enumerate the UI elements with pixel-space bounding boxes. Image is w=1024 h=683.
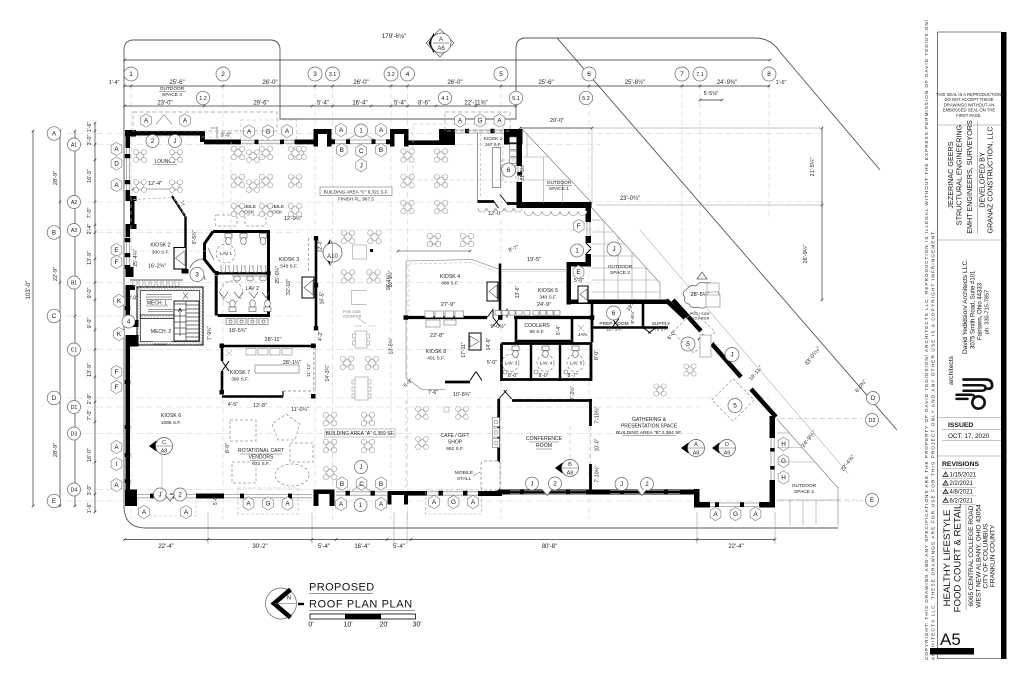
svg-text:103'-0": 103'-0" <box>26 281 32 300</box>
svg-text:3'-0": 3'-0" <box>128 296 138 302</box>
svg-text:A: A <box>713 511 718 518</box>
svg-text:22'-9": 22'-9" <box>53 267 59 281</box>
svg-text:MECH. 2: MECH. 2 <box>151 329 172 335</box>
svg-text:F: F <box>115 259 119 266</box>
svg-text:1'-6": 1'-6" <box>776 80 787 86</box>
svg-text:K: K <box>117 298 122 305</box>
svg-text:380 S.F.: 380 S.F. <box>152 250 170 256</box>
svg-text:662 S.F.: 662 S.F. <box>446 446 464 452</box>
svg-text:A: A <box>114 146 119 153</box>
svg-text:G: G <box>451 499 456 506</box>
svg-text:6'-4": 6'-4" <box>556 325 562 335</box>
svg-text:ROOM: ROOM <box>536 443 552 449</box>
svg-text:7'-0": 7'-0" <box>87 208 93 219</box>
svg-text:548 S.F.: 548 S.F. <box>280 264 298 270</box>
svg-text:5'-0": 5'-0" <box>213 495 219 505</box>
svg-text:D: D <box>725 442 729 448</box>
svg-text:D3: D3 <box>71 432 78 438</box>
svg-text:A: A <box>497 118 502 125</box>
svg-text:2/2/2021: 2/2/2021 <box>950 481 974 487</box>
svg-text:3'-0": 3'-0" <box>87 485 93 496</box>
svg-text:6: 6 <box>507 167 511 174</box>
svg-text:KIOSK 2: KIOSK 2 <box>150 243 170 249</box>
svg-text:5: 5 <box>686 341 690 348</box>
svg-text:K: K <box>117 331 122 338</box>
svg-text:KIOSK 7: KIOSK 7 <box>230 370 250 376</box>
svg-text:F: F <box>577 223 581 230</box>
svg-text:4'-2": 4'-2" <box>318 331 324 341</box>
svg-text:B1: B1 <box>71 281 77 287</box>
svg-text:1: 1 <box>945 473 947 477</box>
svg-text:3: 3 <box>945 490 947 494</box>
svg-text:David Yedidsion/ Architects LL: David Yedidsion/ Architects LLC. <box>962 259 969 354</box>
svg-text:A10: A10 <box>327 254 338 260</box>
svg-text:16'-1½": 16'-1½" <box>387 270 394 287</box>
svg-text:A: A <box>247 129 252 136</box>
svg-text:J: J <box>620 482 623 488</box>
svg-text:26'-0": 26'-0" <box>353 80 368 86</box>
svg-text:OCT. 17, 2020: OCT. 17, 2020 <box>948 433 990 440</box>
svg-text:G: G <box>266 129 271 136</box>
svg-text:179'-6⅛": 179'-6⅛" <box>382 33 406 40</box>
svg-text:G: G <box>478 118 483 125</box>
svg-text:SPACE 3: SPACE 3 <box>794 489 814 495</box>
svg-text:POS / SIDE: POS / SIDE <box>690 312 711 316</box>
svg-text:5.1: 5.1 <box>512 96 520 102</box>
svg-text:PROPOSED: PROPOSED <box>309 582 375 594</box>
svg-text:LAV. 4: LAV. 4 <box>540 361 553 366</box>
svg-text:1'-4": 1'-4" <box>109 80 120 86</box>
svg-text:5'-0": 5'-0" <box>487 360 497 366</box>
svg-text:8'-6": 8'-6" <box>418 101 430 107</box>
svg-text:G: G <box>266 501 271 508</box>
svg-text:KIOSK 5: KIOSK 5 <box>538 288 558 294</box>
svg-text:11'-0¼": 11'-0¼" <box>291 407 309 413</box>
svg-text:REVISIONS: REVISIONS <box>942 461 979 468</box>
svg-text:486 S.F.: 486 S.F. <box>441 281 459 287</box>
svg-text:LAV. 3: LAV. 3 <box>505 361 518 366</box>
svg-text:13'-5¾": 13'-5¾" <box>389 337 395 354</box>
svg-text:MOBILE: MOBILE <box>455 470 473 476</box>
svg-text:N: N <box>287 596 291 602</box>
svg-text:24'-9⅜": 24'-9⅜" <box>717 80 737 86</box>
svg-text:H: H <box>781 475 786 482</box>
svg-text:STALL: STALL <box>457 476 472 482</box>
svg-text:ISSUED: ISSUED <box>948 422 973 429</box>
svg-text:4'-5": 4'-5" <box>228 402 238 408</box>
svg-text:A1: A1 <box>71 143 77 149</box>
svg-text:7: 7 <box>680 71 684 78</box>
svg-text:OUTDOOR: OUTDOOR <box>608 264 633 270</box>
svg-text:CONFERENCE: CONFERENCE <box>526 436 563 442</box>
svg-text:16'-0": 16'-0" <box>87 448 93 462</box>
svg-text:6: 6 <box>587 71 591 78</box>
svg-text:16'-5": 16'-5" <box>320 291 326 304</box>
svg-text:27'-9": 27'-9" <box>441 302 455 308</box>
svg-text:HEALTHY LIFESTYLE: HEALTHY LIFESTYLE <box>942 510 953 607</box>
svg-text:A: A <box>379 501 384 508</box>
svg-text:COOLERS: COOLERS <box>524 323 550 329</box>
svg-text:B: B <box>568 462 572 468</box>
svg-text:A: A <box>144 118 149 125</box>
svg-text:H: H <box>781 441 786 448</box>
svg-text:5'-4": 5'-4" <box>317 101 329 107</box>
svg-text:672 S.F.: 672 S.F. <box>252 461 270 467</box>
svg-text:22'-8": 22'-8" <box>430 333 444 339</box>
svg-text:0': 0' <box>308 622 313 629</box>
svg-text:16'-4": 16'-4" <box>352 101 367 107</box>
svg-text:BUILDING AREA "B" 2,384 SF.: BUILDING AREA "B" 2,384 SF. <box>616 430 682 436</box>
svg-text:16'-2¾": 16'-2¾" <box>148 264 166 270</box>
svg-text:2'-4": 2'-4" <box>87 224 93 235</box>
svg-text:1.2: 1.2 <box>199 96 207 102</box>
svg-text:4/8/2021: 4/8/2021 <box>950 490 974 496</box>
svg-text:80'-8": 80'-8" <box>542 544 557 550</box>
svg-text:5'-0": 5'-0" <box>574 278 584 284</box>
svg-text:13'-9": 13'-9" <box>87 363 93 377</box>
svg-text:22'-4": 22'-4" <box>158 544 173 550</box>
svg-text:POS SIDE: POS SIDE <box>343 310 361 314</box>
svg-text:10': 10' <box>343 622 352 629</box>
svg-text:127 S.F.: 127 S.F. <box>606 327 622 332</box>
svg-text:24'-9": 24'-9" <box>537 302 551 308</box>
svg-text:3'-0": 3'-0" <box>221 133 232 139</box>
svg-text:D4: D4 <box>71 488 78 494</box>
svg-text:9'-0": 9'-0" <box>87 318 93 329</box>
svg-text:EMHT ENGINEERS, SURVEYORS: EMHT ENGINEERS, SURVEYORS <box>965 120 974 234</box>
svg-text:20'-0": 20'-0" <box>550 118 564 124</box>
svg-text:KIOSK 4: KIOSK 4 <box>440 274 460 280</box>
svg-text:5'-4": 5'-4" <box>318 544 330 550</box>
svg-text:5.2: 5.2 <box>582 96 590 102</box>
svg-text:C: C <box>162 440 166 446</box>
svg-text:J: J <box>612 246 615 253</box>
svg-text:J: J <box>531 482 534 488</box>
svg-text:3.1: 3.1 <box>329 72 337 78</box>
svg-text:A: A <box>753 511 758 518</box>
svg-text:OUTDOOR: OUTDOOR <box>160 86 185 92</box>
svg-text:4.1: 4.1 <box>441 96 449 102</box>
svg-text:16'-5": 16'-5" <box>87 169 93 183</box>
svg-text:FRANKLIN COUNTY: FRANKLIN COUNTY <box>990 524 997 587</box>
svg-text:2: 2 <box>945 481 947 485</box>
svg-text:COUNTER: COUNTER <box>691 317 710 321</box>
svg-text:PRESENTATION SPACE: PRESENTATION SPACE <box>621 424 678 430</box>
svg-text:I: I <box>116 461 118 468</box>
svg-text:D1: D1 <box>71 405 78 411</box>
svg-text:3: 3 <box>195 272 199 279</box>
svg-text:25'-6": 25'-6" <box>169 80 184 86</box>
svg-text:6/2/2021: 6/2/2021 <box>950 498 974 504</box>
svg-text:340 S.F.: 340 S.F. <box>539 295 557 301</box>
svg-text:COPYRIGHT: THIS DRAWING AND AN: COPYRIGHT: THIS DRAWING AND ANY SPECIFIC… <box>924 19 929 660</box>
svg-text:A5: A5 <box>940 630 961 649</box>
svg-text:1: 1 <box>129 71 133 78</box>
svg-text:28'-9": 28'-9" <box>53 171 59 185</box>
svg-text:B: B <box>52 230 56 237</box>
svg-text:75 S.F.: 75 S.F. <box>654 327 668 332</box>
svg-text:A6: A6 <box>437 46 445 52</box>
svg-text:98 S.F.: 98 S.F. <box>530 329 545 335</box>
svg-text:E: E <box>576 269 580 276</box>
svg-text:7'-10½": 7'-10½" <box>594 406 601 423</box>
svg-text:8'-8½": 8'-8½" <box>629 310 636 324</box>
svg-text:SPACE 4: SPACE 4 <box>162 92 182 98</box>
svg-text:C: C <box>52 313 57 320</box>
svg-text:OUTDOOR: OUTDOOR <box>547 180 572 186</box>
svg-text:GATHERING &: GATHERING & <box>632 417 667 423</box>
svg-text:A: A <box>694 442 698 448</box>
svg-text:A8: A8 <box>567 470 574 476</box>
svg-text:KIOSK 3: KIOSK 3 <box>279 257 299 263</box>
svg-text:A8: A8 <box>693 450 700 456</box>
svg-text:J: J <box>360 465 363 471</box>
svg-text:A: A <box>246 501 251 508</box>
svg-text:21'-5¼": 21'-5¼" <box>810 158 816 177</box>
svg-text:19'-5": 19'-5" <box>527 257 541 263</box>
svg-text:A8: A8 <box>161 448 168 454</box>
svg-text:28'-9": 28'-9" <box>53 443 59 457</box>
svg-text:7'-0": 7'-0" <box>87 410 93 421</box>
svg-text:10'-0": 10'-0" <box>595 438 601 451</box>
svg-text:30'-2": 30'-2" <box>252 544 267 550</box>
svg-text:8'-0": 8'-0" <box>508 373 518 379</box>
svg-text:29'-6": 29'-6" <box>253 101 268 107</box>
svg-text:D2: D2 <box>869 418 876 424</box>
svg-text:A: A <box>339 127 344 134</box>
svg-text:J: J <box>174 139 177 145</box>
svg-text:FIRST PAGE.: FIRST PAGE. <box>956 113 982 118</box>
svg-text:KIOSK 6: KIOSK 6 <box>161 413 181 419</box>
svg-text:A: A <box>432 499 437 506</box>
svg-text:LAV. 5: LAV. 5 <box>570 361 583 366</box>
svg-text:3075 Smith Road, Suite #101: 3075 Smith Road, Suite #101 <box>971 270 977 349</box>
svg-text:CAFE / GIFT: CAFE / GIFT <box>441 433 470 439</box>
svg-text:BUILDING AREA "C" 6,321 S.F.: BUILDING AREA "C" 6,321 S.F. <box>324 190 389 195</box>
svg-text:A9: A9 <box>724 450 731 456</box>
svg-text:J: J <box>360 163 363 170</box>
svg-text:30': 30' <box>412 622 421 629</box>
svg-text:13'-9": 13'-9" <box>87 251 93 265</box>
svg-text:architects: architects <box>948 355 955 385</box>
svg-text:16'-4": 16'-4" <box>354 544 369 550</box>
svg-text:401 S.F.: 401 S.F. <box>427 356 445 362</box>
svg-text:8: 8 <box>767 71 771 78</box>
svg-text:10'-8¾": 10'-8¾" <box>453 392 471 398</box>
svg-text:22'-11⅝": 22'-11⅝" <box>464 101 487 107</box>
svg-text:21'-5½": 21'-5½" <box>519 163 526 180</box>
svg-text:8'-0": 8'-0" <box>225 443 231 453</box>
svg-text:7'-2½": 7'-2½" <box>569 386 576 400</box>
svg-text:A: A <box>458 118 463 125</box>
svg-text:1/15/2021: 1/15/2021 <box>950 473 977 479</box>
svg-text:247 S.F.: 247 S.F. <box>485 142 501 147</box>
svg-text:8'-7": 8'-7" <box>568 373 578 379</box>
svg-text:A3: A3 <box>71 228 77 234</box>
svg-text:25'-8½": 25'-8½" <box>625 79 645 86</box>
svg-text:A: A <box>439 37 443 43</box>
svg-text:D: D <box>52 395 57 402</box>
svg-text:7'-6": 7'-6" <box>428 390 438 396</box>
svg-text:6065 CENTRAL COLLEGE ROAD: 6065 CENTRAL COLLEGE ROAD <box>968 505 975 606</box>
svg-text:SHOP: SHOP <box>448 440 463 446</box>
svg-text:3: 3 <box>313 71 317 78</box>
svg-text:9'-0": 9'-0" <box>87 288 93 299</box>
svg-text:A: A <box>114 182 119 189</box>
svg-text:20': 20' <box>379 622 388 629</box>
svg-text:A: A <box>184 509 189 516</box>
svg-text:B: B <box>340 147 344 154</box>
svg-text:11'-11": 11'-11" <box>306 363 312 377</box>
svg-text:6: 6 <box>612 310 616 317</box>
svg-text:23'-0¾": 23'-0¾" <box>620 196 640 202</box>
svg-text:28'-1¼": 28'-1¼" <box>283 360 301 366</box>
svg-text:COUNTER: COUNTER <box>343 315 362 319</box>
svg-text:E: E <box>870 498 874 504</box>
svg-text:A: A <box>114 444 119 451</box>
svg-text:7.1: 7.1 <box>696 72 704 78</box>
svg-text:ROTATIONAL CART: ROTATIONAL CART <box>238 448 284 454</box>
svg-text:25'-6": 25'-6" <box>538 80 553 86</box>
svg-text:SPACE 1: SPACE 1 <box>549 186 569 192</box>
svg-text:VENDORS: VENDORS <box>249 455 274 461</box>
svg-text:3.2: 3.2 <box>387 72 395 78</box>
svg-text:7'-9¾": 7'-9¾" <box>207 326 213 340</box>
svg-text:17'-11": 17'-11" <box>461 342 467 357</box>
svg-text:32'-10": 32'-10" <box>286 279 292 295</box>
svg-text:18'-5¾": 18'-5¾" <box>229 328 247 334</box>
svg-text:FOOD COURT & RETAIL: FOOD COURT & RETAIL <box>953 503 964 612</box>
svg-text:G: G <box>733 511 738 518</box>
svg-text:5'-4": 5'-4" <box>393 544 405 550</box>
svg-text:MECH. 1: MECH. 1 <box>147 301 168 307</box>
svg-text:JAN.: JAN. <box>578 332 588 337</box>
svg-text:A: A <box>339 501 344 508</box>
svg-text:D: D <box>871 396 876 402</box>
svg-text:J: J <box>730 352 733 359</box>
svg-text:23'-0": 23'-0" <box>157 101 172 107</box>
svg-text:5: 5 <box>499 71 503 78</box>
svg-text:A: A <box>285 501 290 508</box>
svg-text:390 S.F.: 390 S.F. <box>231 377 249 383</box>
svg-text:22'-4": 22'-4" <box>728 544 743 550</box>
svg-text:FINISH FL. 967.5: FINISH FL. 967.5 <box>338 197 374 202</box>
svg-text:14'-3¾": 14'-3¾" <box>325 364 331 381</box>
svg-text:LAV 1: LAV 1 <box>220 251 233 256</box>
svg-text:STRUCTURAL ENGINEERING: STRUCTURAL ENGINEERING <box>955 124 964 225</box>
svg-text:12'-3": 12'-3" <box>318 239 324 252</box>
svg-text:1088 S.F.: 1088 S.F. <box>161 420 181 426</box>
svg-text:GRANAZ CONSTRUCTION, LLC: GRANAZ CONSTRUCTION, LLC <box>986 126 995 233</box>
svg-text:ROOF PLAN PLAN: ROOF PLAN PLAN <box>309 599 413 611</box>
svg-text:A: A <box>183 118 188 125</box>
svg-text:E: E <box>114 247 118 254</box>
svg-text:ARCHITECTS LLC. THESE DRAWINGS: ARCHITECTS LLC. THESE DRAWINGS ARE FOR U… <box>931 230 936 660</box>
svg-text:B: B <box>379 481 383 488</box>
svg-text:WEST NEW ALBANY, OHIO 43054: WEST NEW ALBANY, OHIO 43054 <box>976 504 983 608</box>
svg-text:5'-4": 5'-4" <box>394 101 406 107</box>
svg-text:A: A <box>142 509 147 516</box>
svg-text:1'-6": 1'-6" <box>87 503 93 514</box>
svg-text:OUTDOOR: OUTDOOR <box>792 483 817 489</box>
svg-text:B: B <box>379 147 383 154</box>
svg-text:A: A <box>471 499 476 506</box>
svg-text:8'-0": 8'-0" <box>539 373 549 379</box>
svg-text:12'-8": 12'-8" <box>253 403 267 409</box>
svg-text:4: 4 <box>945 499 947 503</box>
svg-text:D: D <box>114 161 119 168</box>
svg-text:ph: 330-715-7857: ph: 330-715-7857 <box>985 290 991 334</box>
svg-text:2'-9": 2'-9" <box>87 394 93 405</box>
svg-text:F: F <box>115 384 119 391</box>
svg-text:F: F <box>115 369 119 376</box>
svg-text:1'-6": 1'-6" <box>87 122 93 133</box>
svg-text:C: C <box>359 148 364 155</box>
svg-text:A: A <box>379 127 384 134</box>
svg-text:26'-0": 26'-0" <box>262 80 277 86</box>
svg-text:A: A <box>285 128 290 135</box>
svg-text:3'-0": 3'-0" <box>87 135 93 146</box>
svg-text:12'-4": 12'-4" <box>148 181 162 187</box>
svg-text:A: A <box>114 482 119 489</box>
svg-text:C1: C1 <box>71 348 78 354</box>
svg-text:KIOSK 8: KIOSK 8 <box>426 349 446 355</box>
svg-text:SPACE 2: SPACE 2 <box>610 270 630 276</box>
svg-text:7'-10½": 7'-10½" <box>594 465 601 482</box>
svg-text:LAV 2: LAV 2 <box>246 286 259 292</box>
svg-text:26'-9¼": 26'-9¼" <box>803 245 809 264</box>
svg-text:26'-0": 26'-0" <box>447 80 462 86</box>
svg-text:13'-6": 13'-6" <box>515 285 521 298</box>
svg-text:A2: A2 <box>71 200 77 206</box>
svg-text:4: 4 <box>406 71 410 78</box>
svg-text:CITY OF COLUMBUS: CITY OF COLUMBUS <box>983 523 990 589</box>
svg-text:14'-9": 14'-9" <box>486 337 492 350</box>
svg-text:E: E <box>52 498 56 505</box>
svg-text:5: 5 <box>733 403 737 410</box>
svg-text:8'-0": 8'-0" <box>594 350 600 360</box>
svg-text:5'-5⅝": 5'-5⅝" <box>704 91 719 97</box>
svg-text:BUILDING AREA "A" 6,359 SF.: BUILDING AREA "A" 6,359 SF. <box>326 431 395 437</box>
svg-text:2: 2 <box>221 71 225 78</box>
svg-text:B: B <box>340 481 344 488</box>
svg-text:8'-5¾": 8'-5¾" <box>192 230 198 244</box>
svg-text:Fairlawn, Ohio 44333: Fairlawn, Ohio 44333 <box>978 282 984 340</box>
svg-text:28'-11": 28'-11" <box>265 337 282 343</box>
svg-text:25'-4¼": 25'-4¼" <box>133 249 139 267</box>
